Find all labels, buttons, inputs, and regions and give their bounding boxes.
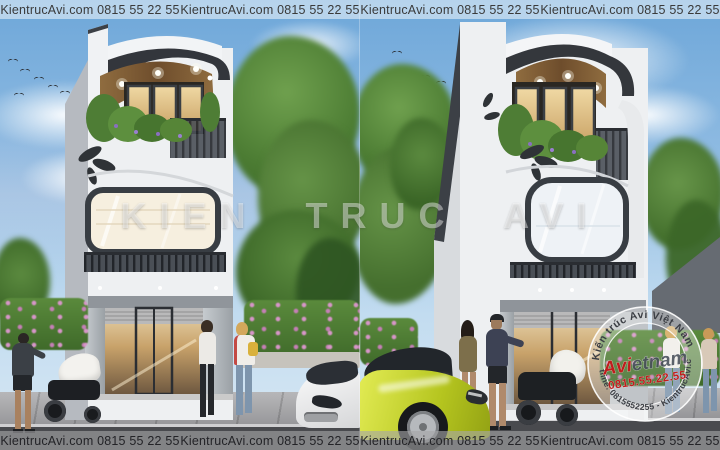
- pedestrian-woman-blonde: [226, 322, 260, 420]
- watermark-text: KientrucAvi.com 0815 55 22 55: [540, 434, 720, 448]
- watermark-text: KientrucAvi.com 0815 55 22 55: [360, 3, 540, 17]
- flower-hedge: [244, 300, 360, 360]
- watermark-text: KientrucAvi.com 0815 55 22 55: [360, 434, 540, 448]
- bottom-watermark-strip: KientrucAvi.com 0815 55 22 55 KientrucAv…: [0, 431, 720, 450]
- watermark-text: KientrucAvi.com 0815 55 22 55: [540, 3, 720, 17]
- stone-lintel: [88, 296, 233, 308]
- brand-stamp: Kiến trúc Avi Việt Nam Hotline: 08155522…: [585, 304, 705, 424]
- railing-top-rail: [510, 262, 636, 265]
- white-car: [290, 360, 360, 434]
- architecture-render-image: KIEN TRUC AVI KientrucAvi.com 0815 55 22…: [0, 0, 720, 450]
- top-watermark-strip: KientrucAvi.com 0815 55 22 55 KientrucAv…: [0, 0, 720, 19]
- baby-stroller: [40, 352, 110, 432]
- pedestrian-woman: [192, 320, 222, 422]
- baby-stroller: [508, 346, 590, 432]
- center-watermark: KIEN TRUC AVI: [0, 195, 720, 237]
- second-floor-band: [88, 272, 233, 296]
- watermark-text: KientrucAvi.com 0815 55 22 55: [180, 3, 360, 17]
- watermark-text: KientrucAvi.com 0815 55 22 55: [180, 434, 360, 448]
- second-floor-band: [504, 278, 644, 300]
- railing-top-rail: [84, 252, 226, 255]
- watermark-text: KientrucAvi.com 0815 55 22 55: [0, 3, 180, 17]
- watermark-text: KientrucAvi.com 0815 55 22 55: [0, 434, 180, 448]
